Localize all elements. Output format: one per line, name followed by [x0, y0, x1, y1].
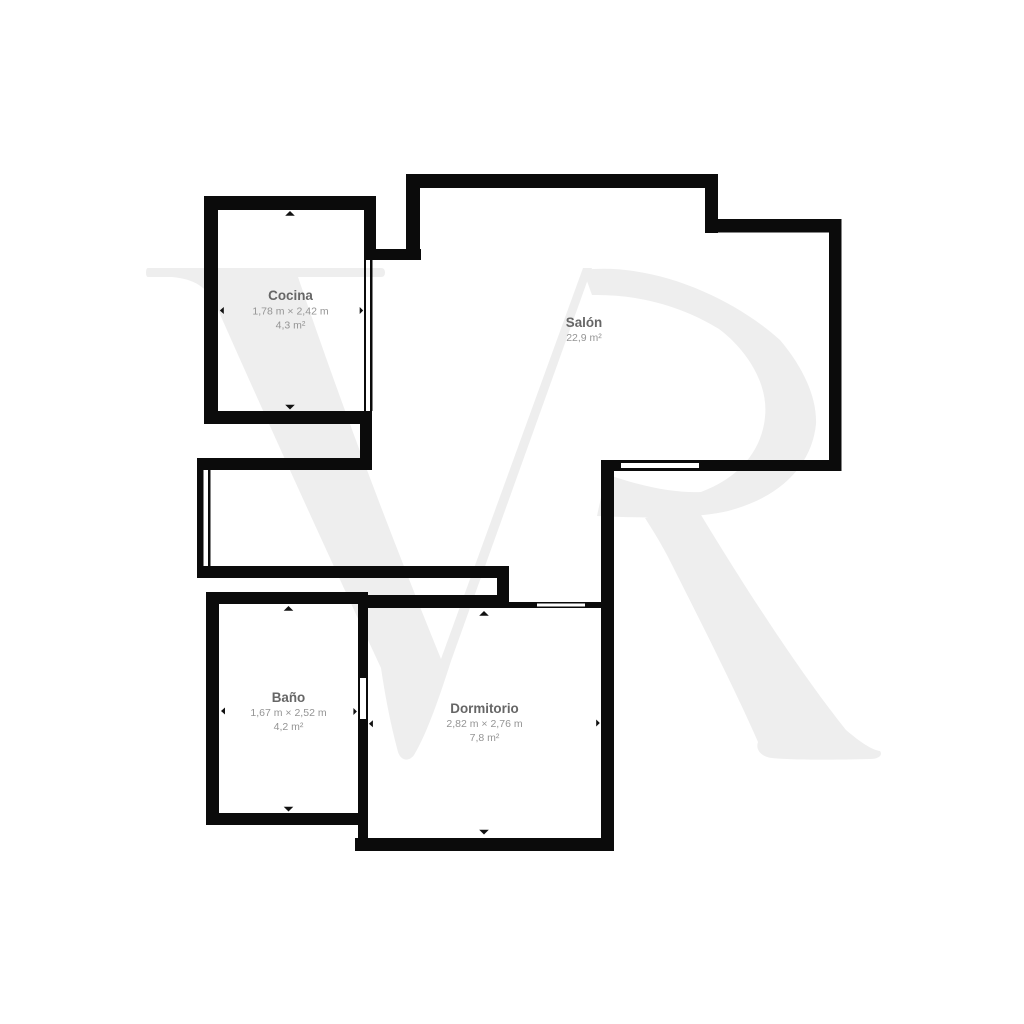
svg-text:22,9 m²: 22,9 m² — [566, 332, 602, 344]
svg-text:2,82 m × 2,76 m: 2,82 m × 2,76 m — [446, 718, 522, 730]
svg-text:1,78 m × 2,42 m: 1,78 m × 2,42 m — [252, 306, 328, 318]
svg-text:Dormitorio: Dormitorio — [450, 701, 518, 716]
svg-text:4,2 m²: 4,2 m² — [274, 721, 304, 733]
svg-text:Cocina: Cocina — [268, 288, 313, 303]
svg-text:4,3 m²: 4,3 m² — [276, 320, 306, 332]
svg-text:7,8 m²: 7,8 m² — [470, 732, 500, 744]
svg-text:Baño: Baño — [272, 690, 305, 705]
svg-text:1,67 m × 2,52 m: 1,67 m × 2,52 m — [250, 707, 326, 719]
svg-text:Salón: Salón — [566, 315, 602, 330]
